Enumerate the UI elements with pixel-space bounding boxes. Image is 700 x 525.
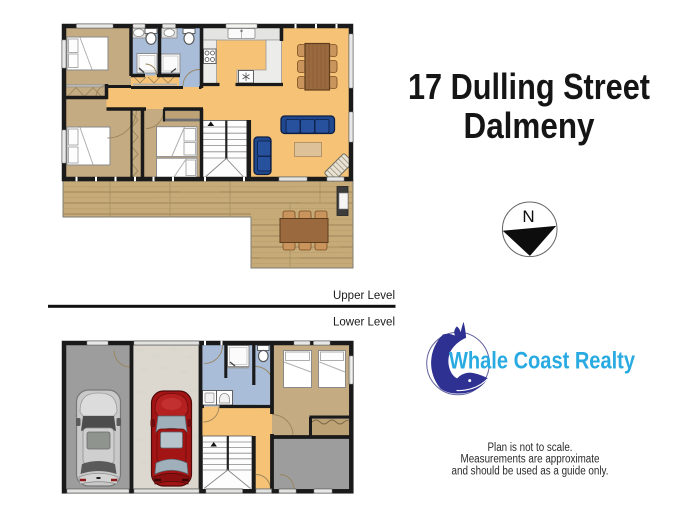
svg-text:N: N [522, 207, 534, 226]
svg-text:Lower Level: Lower Level [333, 317, 395, 329]
svg-text:Measurements are approximate: Measurements are approximate [461, 454, 600, 466]
svg-text:Dalmeny: Dalmeny [464, 105, 595, 146]
svg-text:Plan is not to scale.: Plan is not to scale. [488, 442, 573, 454]
svg-text:Upper Level: Upper Level [333, 290, 395, 302]
svg-text:Whale Coast Realty: Whale Coast Realty [449, 348, 636, 375]
svg-text:and should be used as a guide: and should be used as a guide only. [452, 465, 609, 477]
svg-text:17 Dulling Street: 17 Dulling Street [408, 66, 650, 107]
